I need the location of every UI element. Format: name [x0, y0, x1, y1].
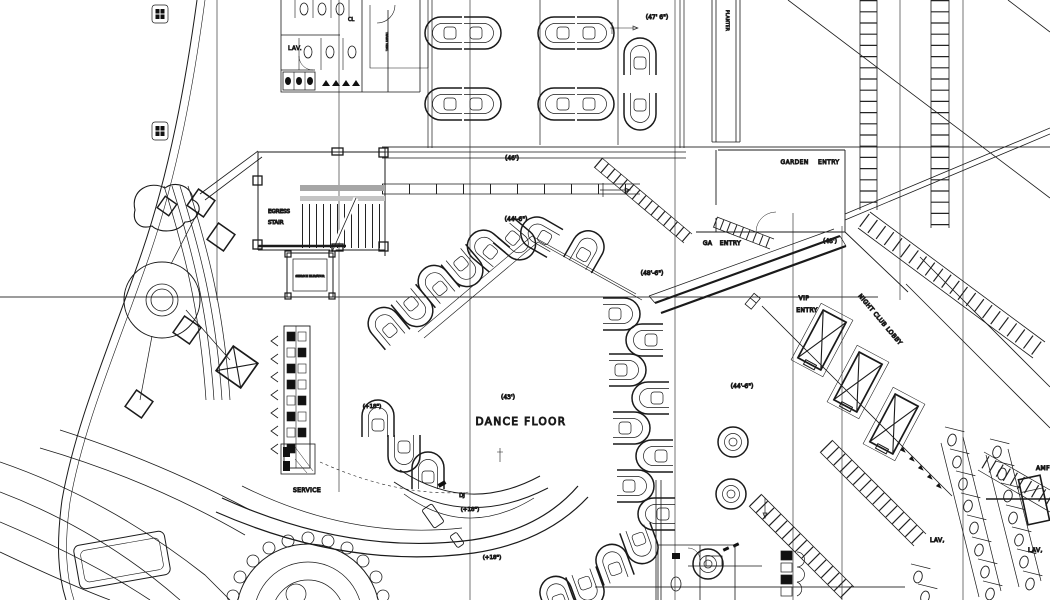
dim-48-6: (48'-6") — [641, 270, 664, 277]
egress-stair: EGRESS STAIR — [253, 148, 388, 256]
promenade-curves — [216, 486, 588, 557]
dance-floor-booths: (44'-6") (+18") — [362, 211, 754, 600]
vip-entry-label-2: ENTRY — [796, 307, 817, 314]
floor-plan-canvas: LAV. CL TRASH VEST. (47' 6") PLANTER GAR… — [0, 0, 1050, 600]
promenade-ga-entry: (46') (44'-6") GA ENTRY (48'-6") — [382, 155, 846, 313]
planter-strip: PLANTER — [712, 0, 740, 142]
closet-label: CL — [348, 17, 354, 23]
booth-area-top: (47' 6") — [382, 0, 686, 158]
left-curved-structure — [59, 0, 262, 600]
ga-entry-label: GA ENTRY — [703, 240, 741, 247]
vip-elevator-lobby: VIP ENTRY NIGHT CLUB LOBBY — [745, 293, 925, 461]
service-bar: SERVICE — [271, 326, 321, 494]
egress-stair-label-2: STAIR — [268, 220, 284, 226]
plus18-lower: (+18") — [483, 555, 501, 561]
trash-vestibule-label: TRASH VEST. — [385, 31, 389, 51]
dim-46: (46') — [505, 155, 519, 162]
planter-label: PLANTER — [725, 10, 730, 31]
night-club-lobby-label: NIGHT CLUB LOBBY — [856, 293, 903, 347]
service-elevator-label: SERVICE ELEVATOR — [295, 274, 324, 278]
amphitheater-partial-label: AMF — [1036, 465, 1050, 472]
dim-43: (43') — [501, 394, 515, 401]
lavatories-right: LAV, LAV, AMF — [907, 427, 1050, 600]
lav-lower-mid-label: LAV, — [930, 537, 945, 544]
trash-vestibule: TRASH VEST. — [370, 5, 428, 68]
egress-stair-label-1: EGRESS — [268, 209, 291, 215]
nightclub-floor-plan: LAV. CL TRASH VEST. (47' 6") PLANTER GAR… — [0, 0, 1050, 600]
amphitheater-rows — [0, 430, 389, 600]
vip-entry-label-1: VIP — [799, 295, 810, 302]
dim-top-booths: (47' 6") — [646, 14, 668, 21]
service-elevator: SERVICE ELEVATOR — [285, 251, 335, 299]
plus18-dj: (+18") — [461, 507, 479, 513]
dance-floor-label: DANCE FLOOR — [476, 416, 567, 428]
service-label: SERVICE — [293, 487, 321, 494]
lav-lower-right-label: LAV, — [1028, 547, 1043, 554]
dim-44-6-lower: (44'-6") — [731, 383, 754, 390]
lav-upper-left-label: LAV. — [288, 45, 302, 52]
dance-floor: (43') DANCE FLOOR — [418, 236, 642, 462]
plus18-left: (+18") — [363, 404, 381, 410]
dj-label: DJ — [459, 493, 465, 499]
restrooms-upper-left: LAV. CL — [281, 0, 420, 92]
garden-entry-label: GARDEN ENTRY — [781, 159, 840, 166]
